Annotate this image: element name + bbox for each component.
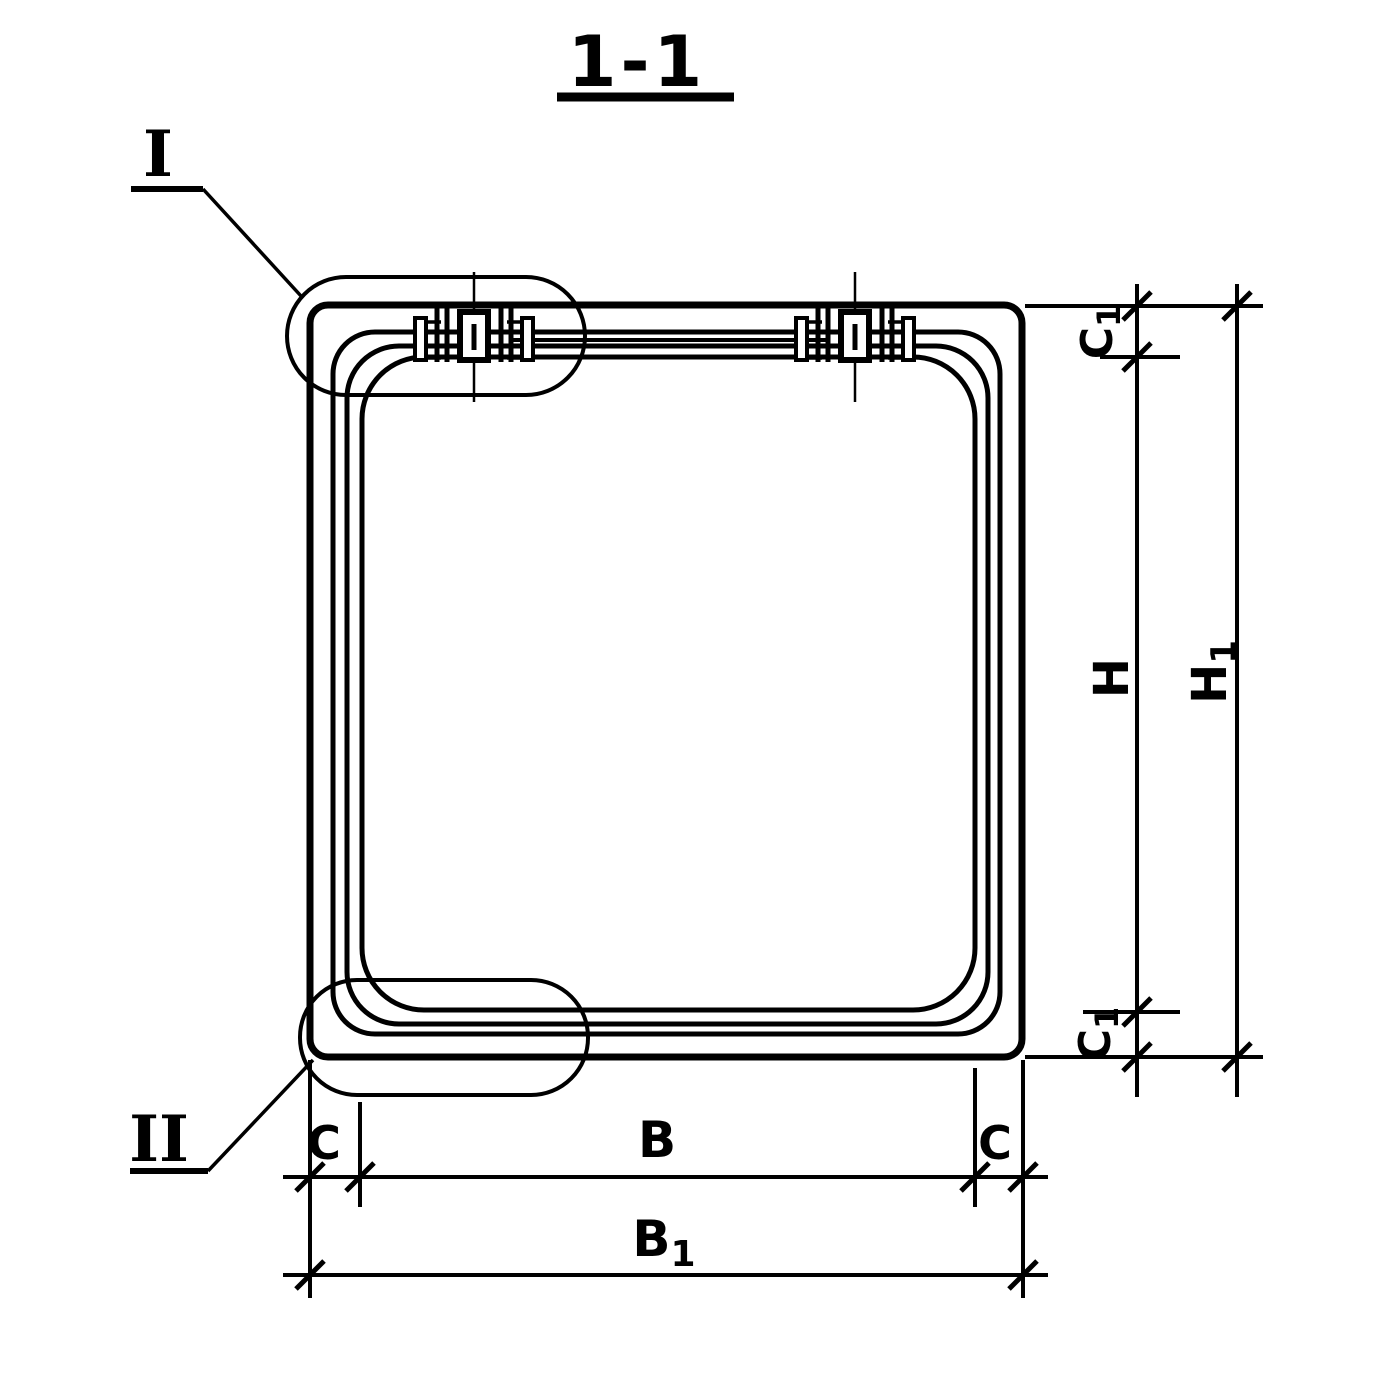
detail-leader-II	[208, 1060, 313, 1171]
frame-mid-contour-1	[333, 332, 1000, 1034]
detail-label-I: I	[143, 117, 173, 192]
section-drawing: 1-1 I	[0, 0, 1374, 1379]
dim-label-C-right: C	[978, 1116, 1012, 1170]
dim-label-C1-top: C1	[1072, 305, 1128, 360]
frame-outer-contour	[310, 305, 1022, 1057]
joint-side-plate	[522, 318, 533, 360]
dim-label-B1: B1	[632, 1210, 695, 1275]
detail-label-II: II	[129, 1102, 189, 1177]
frame-mid-contour-2	[347, 346, 988, 1024]
top-joint-left	[415, 272, 533, 402]
dim-label-H: H	[1084, 658, 1140, 698]
joint-side-plate	[796, 318, 807, 360]
dim-label-H1: H1	[1182, 640, 1244, 704]
drawing-sheet: 1-1 I	[0, 0, 1374, 1379]
detail-leader-I	[203, 189, 301, 296]
frame-inner-contour	[362, 357, 975, 1010]
dim-label-B: B	[638, 1111, 676, 1169]
dim-label-C-left: C	[307, 1116, 341, 1170]
dim-label-C1-bottom: C1	[1070, 1007, 1126, 1062]
top-joint-right	[796, 272, 914, 402]
joint-side-plate	[903, 318, 914, 360]
joint-side-plate	[415, 318, 426, 360]
section-title: 1-1	[568, 21, 706, 103]
detail-balloon-II	[300, 980, 588, 1095]
